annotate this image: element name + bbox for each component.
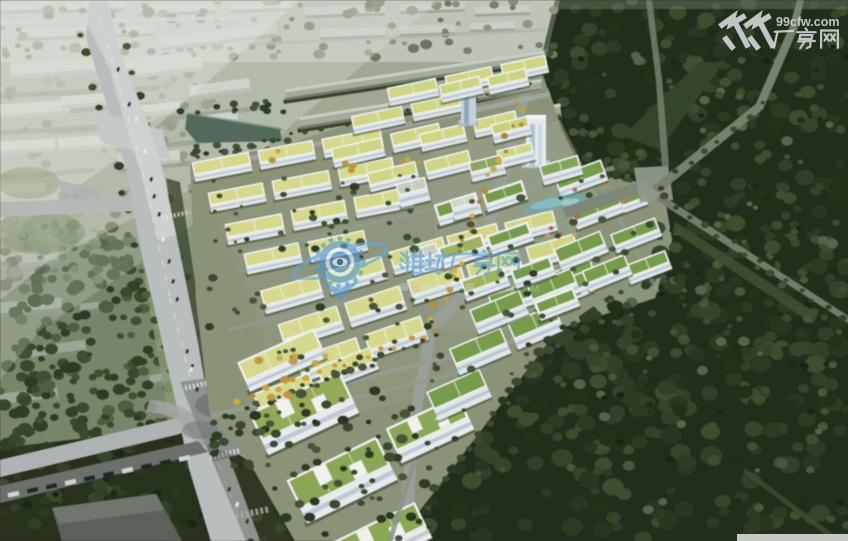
- svg-text:99cfw.com: 99cfw.com: [776, 15, 839, 29]
- svg-text:99CFW.COM: 99CFW.COM: [480, 284, 539, 295]
